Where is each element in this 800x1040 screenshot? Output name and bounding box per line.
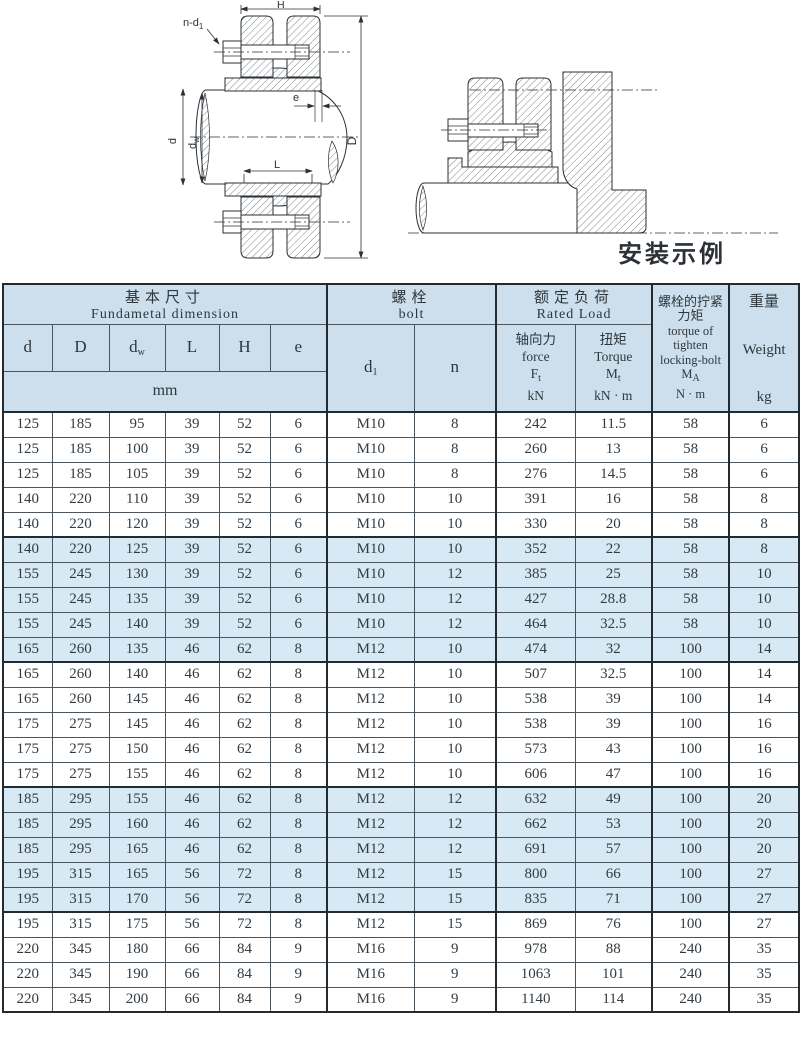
table-cell: 130	[109, 562, 165, 587]
table-cell: 165	[109, 837, 165, 862]
table-cell: 52	[219, 462, 270, 487]
table-cell: 66	[165, 937, 219, 962]
table-cell: 52	[219, 437, 270, 462]
table-cell: 185	[3, 787, 52, 812]
table-cell: 39	[165, 587, 219, 612]
table-cell: 35	[729, 987, 799, 1012]
table-cell: 16	[575, 487, 652, 512]
table-cell: 27	[729, 912, 799, 937]
table-cell: 315	[52, 887, 109, 912]
table-cell: 62	[219, 812, 270, 837]
table-cell: 14	[729, 637, 799, 662]
table-cell: 200	[109, 987, 165, 1012]
table-cell: 8	[270, 737, 327, 762]
table-cell: 20	[575, 512, 652, 537]
table-cell: 6	[270, 412, 327, 437]
table-cell: 8	[270, 762, 327, 787]
table-row: 15524513539526M101242728.85810	[3, 587, 799, 612]
table-cell: 10	[414, 487, 496, 512]
table-cell: 58	[652, 437, 729, 462]
technical-drawings-area: H n-d1 d dw L D e	[0, 0, 800, 283]
table-cell: 8	[270, 787, 327, 812]
top-clamp-assembly	[214, 16, 350, 91]
table-cell: 195	[3, 862, 52, 887]
table-cell: 14	[729, 662, 799, 687]
table-cell: 47	[575, 762, 652, 787]
table-cell: 10	[414, 687, 496, 712]
table-cell: 58	[652, 612, 729, 637]
table-cell: 10	[414, 712, 496, 737]
table-cell: 220	[52, 487, 109, 512]
table-cell: 9	[270, 937, 327, 962]
table-cell: 84	[219, 987, 270, 1012]
table-header: 基本尺寸 Fundametal dimension 螺栓 bolt 额定负荷 R…	[3, 284, 799, 412]
table-cell: 76	[575, 912, 652, 937]
table-cell: 330	[496, 512, 575, 537]
table-cell: 295	[52, 787, 109, 812]
bottom-clamp-assembly	[214, 183, 350, 258]
table-cell: 8	[414, 462, 496, 487]
table-cell: 13	[575, 437, 652, 462]
col-D: D	[52, 324, 109, 371]
table-cell: 12	[414, 837, 496, 862]
table-cell: M10	[327, 487, 414, 512]
table-cell: 39	[165, 612, 219, 637]
header-bolt: 螺栓 bolt	[327, 284, 496, 324]
table-cell: 6	[270, 587, 327, 612]
table-cell: 220	[3, 987, 52, 1012]
table-cell: 175	[109, 912, 165, 937]
table-cell: 632	[496, 787, 575, 812]
table-cell: 8	[270, 812, 327, 837]
table-cell: 345	[52, 987, 109, 1012]
table-cell: 260	[496, 437, 575, 462]
table-cell: 100	[109, 437, 165, 462]
table-cell: 71	[575, 887, 652, 912]
dim-label-L: L	[274, 159, 280, 171]
table-cell: 100	[652, 712, 729, 737]
table-cell: 220	[3, 962, 52, 987]
table-cell: 155	[3, 612, 52, 637]
table-cell: 170	[109, 887, 165, 912]
table-cell: 185	[52, 412, 109, 437]
table-cell: 52	[219, 562, 270, 587]
table-cell: 800	[496, 862, 575, 887]
table-cell: 10	[414, 637, 496, 662]
table-cell: 100	[652, 837, 729, 862]
table-cell: 160	[109, 812, 165, 837]
table-cell: 16	[729, 712, 799, 737]
table-cell: 276	[496, 462, 575, 487]
dim-label-e: e	[293, 92, 299, 104]
table-cell: 57	[575, 837, 652, 862]
table-cell: 6	[270, 437, 327, 462]
table-cell: 15	[414, 912, 496, 937]
table-cell: 195	[3, 887, 52, 912]
table-cell: 185	[3, 812, 52, 837]
col-axial-force: 轴向力 force Ft kN	[496, 324, 575, 412]
unit-mm: mm	[3, 371, 327, 412]
table-cell: 84	[219, 962, 270, 987]
table-cell: 25	[575, 562, 652, 587]
table-cell: 155	[3, 587, 52, 612]
table-cell: 145	[109, 712, 165, 737]
table-cell: 62	[219, 662, 270, 687]
table-cell: 46	[165, 787, 219, 812]
table-cell: 20	[729, 812, 799, 837]
table-cell: 8	[414, 412, 496, 437]
table-cell: 662	[496, 812, 575, 837]
table-row: 22034518066849M1699788824035	[3, 937, 799, 962]
table-cell: 15	[414, 862, 496, 887]
table-cell: 260	[52, 687, 109, 712]
table-cell: 427	[496, 587, 575, 612]
table-cell: 8	[270, 637, 327, 662]
table-cell: 43	[575, 737, 652, 762]
col-n: n	[414, 324, 496, 412]
table-cell: M16	[327, 962, 414, 987]
table-cell: 39	[575, 687, 652, 712]
table-cell: M12	[327, 637, 414, 662]
table-cell: 56	[165, 912, 219, 937]
table-cell: 9	[414, 987, 496, 1012]
table-row: 14022012039526M101033020588	[3, 512, 799, 537]
table-cell: 32.5	[575, 612, 652, 637]
table-cell: 6	[729, 412, 799, 437]
col-H: H	[219, 324, 270, 371]
table-cell: 245	[52, 612, 109, 637]
table-cell: 58	[652, 537, 729, 562]
table-cell: 66	[165, 987, 219, 1012]
table-cell: 260	[52, 637, 109, 662]
left-drawing-section-view: H n-d1 d dw L D e	[167, 0, 368, 258]
table-cell: 165	[3, 687, 52, 712]
table-cell: 140	[109, 662, 165, 687]
dimension-table: 基本尺寸 Fundametal dimension 螺栓 bolt 额定负荷 R…	[2, 283, 800, 1013]
table-cell: 8	[270, 862, 327, 887]
table-cell: 6	[270, 462, 327, 487]
table-cell: 8	[729, 512, 799, 537]
table-cell: 46	[165, 737, 219, 762]
table-cell: 385	[496, 562, 575, 587]
header-fundamental-dimension: 基本尺寸 Fundametal dimension	[3, 284, 327, 324]
table-cell: 66	[575, 862, 652, 887]
table-cell: M10	[327, 412, 414, 437]
table-cell: 125	[3, 412, 52, 437]
table-cell: 185	[52, 462, 109, 487]
table-cell: 260	[52, 662, 109, 687]
table-cell: 140	[3, 487, 52, 512]
table-cell: M16	[327, 987, 414, 1012]
header-tightening-torque: 螺栓的拧紧 力矩 torque of tighten locking-bolt …	[652, 284, 729, 412]
table-cell: 27	[729, 862, 799, 887]
table-cell: 56	[165, 887, 219, 912]
table-cell: 20	[729, 837, 799, 862]
table-cell: 538	[496, 687, 575, 712]
table-cell: 58	[652, 587, 729, 612]
dim-label-dw: dw	[187, 137, 201, 149]
table-row: 19531517056728M12158357110027	[3, 887, 799, 912]
table-cell: 88	[575, 937, 652, 962]
table-cell: 100	[652, 912, 729, 937]
table-cell: 39	[165, 537, 219, 562]
table-cell: M12	[327, 862, 414, 887]
table-cell: 12	[414, 612, 496, 637]
table-cell: 538	[496, 712, 575, 737]
table-cell: 606	[496, 762, 575, 787]
table-cell: 6	[270, 612, 327, 637]
table-cell: 84	[219, 937, 270, 962]
table-cell: M10	[327, 537, 414, 562]
table-cell: 95	[109, 412, 165, 437]
table-cell: M10	[327, 512, 414, 537]
table-cell: 140	[109, 612, 165, 637]
locking-assembly	[441, 78, 558, 183]
table-cell: 62	[219, 737, 270, 762]
table-cell: 345	[52, 937, 109, 962]
header-rated-load: 额定负荷 Rated Load	[496, 284, 652, 324]
table-row: 19531517556728M12158697610027	[3, 912, 799, 937]
table-row: 1251859539526M10824211.5586	[3, 412, 799, 437]
table-cell: 140	[3, 537, 52, 562]
table-cell: 120	[109, 512, 165, 537]
table-cell: 835	[496, 887, 575, 912]
table-cell: 58	[652, 487, 729, 512]
table-cell: 8	[270, 662, 327, 687]
table-cell: 1140	[496, 987, 575, 1012]
table-cell: 100	[652, 637, 729, 662]
table-row: 15524514039526M101246432.55810	[3, 612, 799, 637]
table-cell: 978	[496, 937, 575, 962]
dim-label-d: d	[167, 138, 179, 144]
table-cell: M12	[327, 837, 414, 862]
table-cell: 14	[729, 687, 799, 712]
table-cell: 39	[165, 437, 219, 462]
table-cell: 66	[165, 962, 219, 987]
table-cell: 49	[575, 787, 652, 812]
table-cell: 16	[729, 762, 799, 787]
table-cell: 62	[219, 637, 270, 662]
table-cell: M10	[327, 437, 414, 462]
table-cell: 100	[652, 737, 729, 762]
table-cell: 20	[729, 787, 799, 812]
table-cell: 10	[729, 587, 799, 612]
table-cell: 110	[109, 487, 165, 512]
table-cell: 190	[109, 962, 165, 987]
col-e: e	[270, 324, 327, 371]
table-cell: 16	[729, 737, 799, 762]
table-cell: 46	[165, 712, 219, 737]
table-cell: 32.5	[575, 662, 652, 687]
table-cell: 185	[3, 837, 52, 862]
table-cell: 52	[219, 612, 270, 637]
table-cell: 52	[219, 537, 270, 562]
table-cell: 8	[270, 687, 327, 712]
table-cell: 15	[414, 887, 496, 912]
table-cell: 8	[270, 912, 327, 937]
table-cell: M12	[327, 812, 414, 837]
dim-label-H: H	[277, 0, 285, 11]
table-cell: 46	[165, 762, 219, 787]
table-cell: 240	[652, 937, 729, 962]
table-cell: 39	[575, 712, 652, 737]
table-row: 18529515546628M12126324910020	[3, 787, 799, 812]
table-cell: 155	[109, 787, 165, 812]
table-cell: 175	[3, 737, 52, 762]
table-cell: 165	[3, 662, 52, 687]
table-cell: M12	[327, 887, 414, 912]
table-cell: 6	[270, 487, 327, 512]
table-cell: 46	[165, 637, 219, 662]
table-row: 19531516556728M12158006610027	[3, 862, 799, 887]
table-cell: 8	[729, 537, 799, 562]
table-cell: 35	[729, 937, 799, 962]
table-cell: 100	[652, 687, 729, 712]
table-cell: 240	[652, 987, 729, 1012]
table-cell: 62	[219, 787, 270, 812]
table-cell: 10	[414, 512, 496, 537]
table-cell: M12	[327, 787, 414, 812]
table-cell: 125	[109, 537, 165, 562]
table-cell: 62	[219, 687, 270, 712]
table-row: 17527515546628M12106064710016	[3, 762, 799, 787]
table-cell: 8	[270, 712, 327, 737]
table-cell: M12	[327, 662, 414, 687]
table-cell: 8	[270, 887, 327, 912]
table-cell: 125	[3, 437, 52, 462]
table-cell: 100	[652, 812, 729, 837]
table-cell: 12	[414, 562, 496, 587]
table-cell: 58	[652, 412, 729, 437]
table-row: 17527514546628M12105383910016	[3, 712, 799, 737]
table-cell: 52	[219, 512, 270, 537]
table-cell: 150	[109, 737, 165, 762]
table-cell: 145	[109, 687, 165, 712]
table-row: 18529516546628M12126915710020	[3, 837, 799, 862]
table-cell: 14.5	[575, 462, 652, 487]
table-cell: 12	[414, 787, 496, 812]
table-cell: M10	[327, 562, 414, 587]
table-cell: 573	[496, 737, 575, 762]
right-drawing-installation: 安装示例	[408, 72, 778, 268]
table-cell: M12	[327, 912, 414, 937]
table-cell: 9	[270, 962, 327, 987]
table-cell: 6	[270, 562, 327, 587]
table-body: 1251859539526M10824211.55861251851003952…	[3, 412, 799, 1012]
table-cell: M12	[327, 737, 414, 762]
table-cell: M12	[327, 712, 414, 737]
table-row: 16526014546628M12105383910014	[3, 687, 799, 712]
table-cell: 53	[575, 812, 652, 837]
table-cell: 46	[165, 812, 219, 837]
table-cell: 175	[3, 762, 52, 787]
table-cell: 180	[109, 937, 165, 962]
table-cell: 240	[652, 962, 729, 987]
table-cell: 869	[496, 912, 575, 937]
table-cell: 245	[52, 562, 109, 587]
table-row: 16526013546628M12104743210014	[3, 637, 799, 662]
table-cell: 58	[652, 512, 729, 537]
table-cell: 32	[575, 637, 652, 662]
table-cell: 72	[219, 862, 270, 887]
table-cell: 220	[52, 512, 109, 537]
table-cell: 12	[414, 587, 496, 612]
table-cell: 8	[414, 437, 496, 462]
table-cell: 140	[3, 512, 52, 537]
table-cell: 295	[52, 812, 109, 837]
table-cell: 105	[109, 462, 165, 487]
table-cell: 72	[219, 887, 270, 912]
table-cell: 315	[52, 912, 109, 937]
table-cell: 52	[219, 487, 270, 512]
table-row: 17527515046628M12105734310016	[3, 737, 799, 762]
table-cell: 10	[414, 737, 496, 762]
table-cell: 175	[3, 712, 52, 737]
table-cell: 62	[219, 837, 270, 862]
table-cell: 52	[219, 412, 270, 437]
table-cell: 56	[165, 862, 219, 887]
table-cell: 220	[52, 537, 109, 562]
table-cell: 39	[165, 412, 219, 437]
table-cell: 464	[496, 612, 575, 637]
table-row: 15524513039526M1012385255810	[3, 562, 799, 587]
top-bolt	[214, 41, 350, 63]
table-cell: M12	[327, 687, 414, 712]
col-d: d	[3, 324, 52, 371]
table-cell: 165	[109, 862, 165, 887]
table-cell: 352	[496, 537, 575, 562]
table-cell: 135	[109, 587, 165, 612]
table-cell: 46	[165, 837, 219, 862]
table-cell: 185	[52, 437, 109, 462]
table-cell: 691	[496, 837, 575, 862]
table-cell: 35	[729, 962, 799, 987]
table-cell: M10	[327, 462, 414, 487]
table-row: 12518510539526M10827614.5586	[3, 462, 799, 487]
table-cell: 114	[575, 987, 652, 1012]
col-d1: d1	[327, 324, 414, 412]
table-cell: 6	[270, 537, 327, 562]
table-cell: 155	[3, 562, 52, 587]
table-cell: 275	[52, 737, 109, 762]
table-cell: M10	[327, 587, 414, 612]
table-cell: 6	[729, 462, 799, 487]
table-cell: 28.8	[575, 587, 652, 612]
table-cell: 39	[165, 562, 219, 587]
table-row: 18529516046628M12126625310020	[3, 812, 799, 837]
table-cell: 46	[165, 662, 219, 687]
table-cell: 1063	[496, 962, 575, 987]
table-row: 14022011039526M101039116588	[3, 487, 799, 512]
table-cell: 245	[52, 587, 109, 612]
table-cell: 507	[496, 662, 575, 687]
table-cell: 9	[414, 962, 496, 987]
table-cell: 10	[414, 537, 496, 562]
table-row: 12518510039526M10826013586	[3, 437, 799, 462]
dim-label-n-d1: n-d1	[183, 17, 204, 31]
table-cell: 242	[496, 412, 575, 437]
table-cell: 345	[52, 962, 109, 987]
table-cell: 10	[729, 612, 799, 637]
table-cell: 391	[496, 487, 575, 512]
table-cell: 220	[3, 937, 52, 962]
table-cell: 135	[109, 637, 165, 662]
table-cell: 100	[652, 787, 729, 812]
table-cell: 100	[652, 887, 729, 912]
table-row: 22034519066849M169106310124035	[3, 962, 799, 987]
table-row: 16526014046628M121050732.510014	[3, 662, 799, 687]
table-cell: 52	[219, 587, 270, 612]
